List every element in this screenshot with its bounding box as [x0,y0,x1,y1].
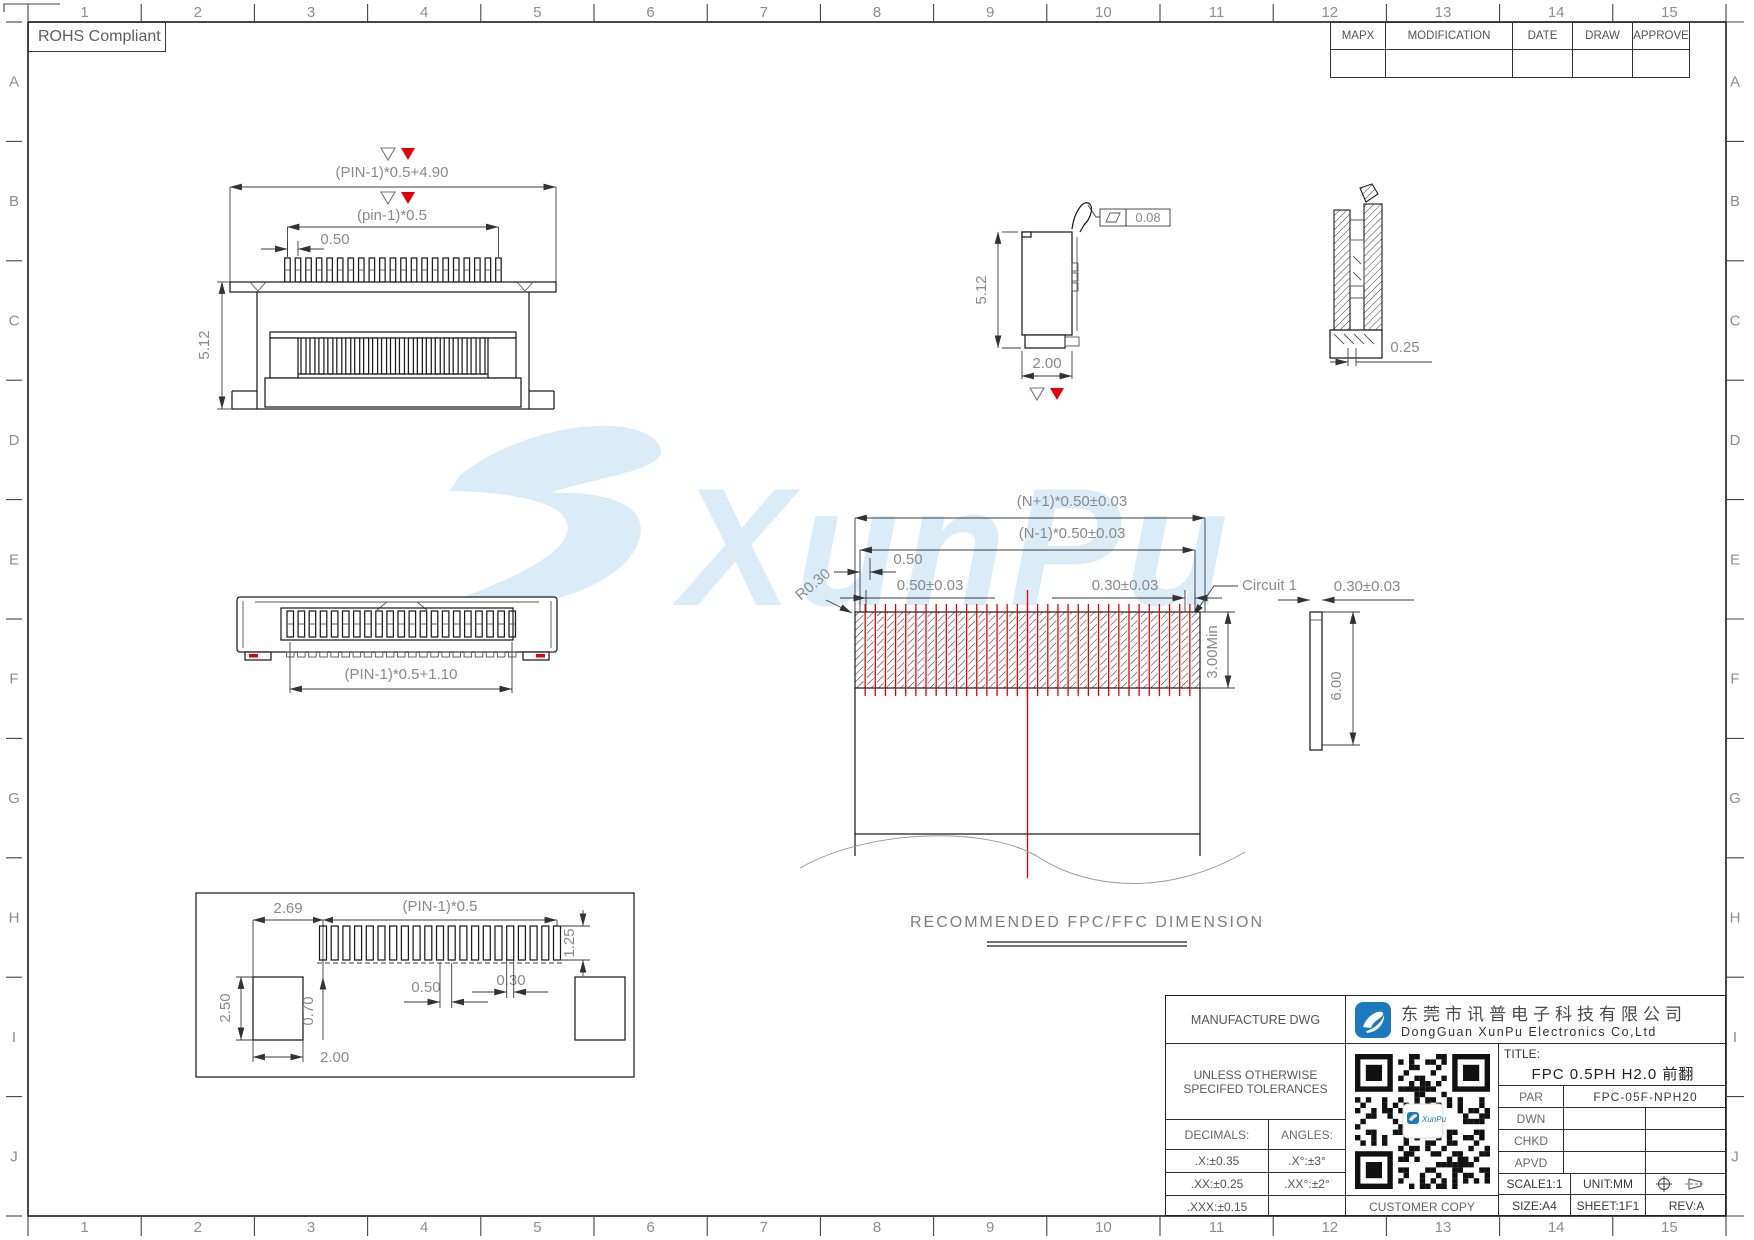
dimension-label: 1.25 [561,928,578,957]
manufacture-cell: MANUFACTURE DWG [1166,996,1346,1044]
unit-cell: UNIT:MM [1571,1174,1646,1195]
dimension-label: 0.50 [893,551,922,568]
zone-column-label: 15 [1661,1219,1678,1236]
row-label-dwn: DWN [1499,1108,1564,1130]
chkd-date [1646,1130,1727,1152]
rev-col-modification: MODIFICATION [1385,22,1512,50]
zone-column-label: 6 [646,1219,654,1236]
tolerance-line1: UNLESS OTHERWISE [1194,1068,1318,1082]
dimension-label: 0.70 [300,996,317,1025]
break-line [800,836,1245,884]
rev-col-date: DATE [1512,22,1572,50]
zone-row-label: F [9,671,18,688]
zone-row-label: B [1730,193,1740,210]
rev-empty-cell [1632,50,1690,78]
rev-empty-cell [1385,50,1512,78]
rohs-label: ROHS Compliant [38,28,161,46]
dimension-label: 0.30 [496,972,525,989]
zone-row-label: J [1731,1148,1739,1165]
dimension-label: 3.00Min [1204,625,1221,678]
drawing-title: FPC 0.5PH H2.0 前翻 [1499,1063,1727,1084]
tolerance-angle [1269,1195,1346,1217]
datum-triangle-icon [1030,388,1044,400]
tolerance-decimal: .XXX:±0.15 [1166,1195,1269,1217]
dimension-label: 2.00 [1032,355,1061,372]
zone-column-label: 15 [1661,4,1678,21]
rev-empty-cell [1572,50,1632,78]
tolerance-angle: .XX°:±2° [1269,1172,1346,1195]
zone-column-label: 9 [986,4,994,21]
actuator-latch [1072,203,1091,232]
apvd-date [1646,1152,1727,1174]
zone-column-label: 10 [1095,1219,1112,1236]
title-label: TITLE: [1504,1047,1540,1061]
dimension-label: 0.50 [320,231,349,248]
zone-column-label: 12 [1321,4,1338,21]
qr-center-logo-text: XunPu [1421,1115,1447,1124]
rev-empty-cell [1330,50,1385,78]
rev-empty-cell [1512,50,1572,78]
tolerance-decimal: .X:±0.35 [1166,1149,1269,1172]
qr-code: XunPu [1355,1054,1490,1189]
circuit-label: Circuit 1 [1242,577,1297,594]
housing-wall [1364,204,1382,330]
angles-header: ANGLES: [1269,1119,1346,1149]
dimension-label: (N+1)*0.50±0.03 [1017,493,1127,510]
red-triangle-icon [401,192,415,204]
radius-label: R0.30 [792,565,834,604]
zone-column-label: 2 [194,1219,202,1236]
zone-row-label: H [9,910,20,927]
red-triangle-icon [1050,388,1064,400]
fpc-side-profile [1310,612,1322,750]
company-cell: 东莞市讯普电子科技有限公司 DongGuan XunPu Electronics… [1346,996,1727,1044]
fpc-dimension-view: (N+1)*0.50±0.03 (N-1)*0.50±0.03 0.50 0.5… [790,460,1480,970]
row-label-apvd: APVD [1499,1152,1564,1174]
part-number: FPC-05F-NPH20 [1564,1086,1727,1108]
row-label-chkd: CHKD [1499,1130,1564,1152]
anchor-pad [575,977,625,1040]
projection-symbol [1646,1174,1727,1195]
dimension-label: 0.50±0.03 [897,577,964,594]
zone-row-label: I [12,1029,16,1046]
decimals-header: DECIMALS: [1166,1119,1269,1149]
zone-column-label: 3 [307,4,315,21]
dimension-label: (PIN-1)*0.5 [402,898,477,915]
title-cell: TITLE: FPC 0.5PH H2.0 前翻 [1499,1044,1727,1086]
dimension-label: 0.30±0.03 [1334,578,1401,595]
latch-section [1360,184,1378,202]
red-mark [536,654,545,658]
zone-column-label: 3 [307,1219,315,1236]
zone-column-label: 8 [873,1219,881,1236]
connector-base [265,378,521,407]
zone-row-label: A [1730,74,1740,91]
zone-row-label: F [1730,671,1739,688]
rev-cell: REV:A [1646,1195,1727,1217]
housing-wall [1334,210,1350,330]
zone-row-label: H [1730,910,1741,927]
zone-row-label: D [1730,432,1741,449]
zone-column-label: 5 [533,1219,541,1236]
zone-column-label: 11 [1209,1219,1225,1236]
dimension-label: 5.12 [196,330,213,359]
zone-column-label: 4 [420,1219,428,1236]
red-mark [249,654,258,658]
third-angle-projection-icon [1655,1176,1719,1192]
zone-column-label: 7 [760,1219,768,1236]
side-body [1022,232,1072,335]
connector-top-band [230,282,556,292]
zone-column-label: 11 [1209,4,1225,21]
zone-row-label: G [8,790,20,807]
apvd-value [1564,1152,1646,1174]
anchor-pad [253,977,303,1040]
drawing-sheet: XunPu 1122334455667788991010111112121313… [0,0,1754,1240]
tolerance-angle: .X°:±3° [1269,1149,1346,1172]
zone-column-label: 14 [1548,1219,1565,1236]
pin-row [285,258,502,282]
land-pattern-view: (PIN-1)*0.5 2.69 1.25 2.50 0.70 2.00 0.5… [170,880,665,1095]
sheet-cell: SHEET:1F1 [1571,1195,1646,1217]
tolerance-line2: SPECIFED TOLERANCES [1183,1082,1327,1096]
zone-row-label: E [1730,551,1740,568]
tolerance-note: UNLESS OTHERWISE SPECIFED TOLERANCES [1166,1044,1346,1119]
qr-cell: XunPu [1346,1044,1499,1195]
title-block: MANUFACTURE DWG 东莞市讯普电子科技有限公司 DongGuan X… [1165,995,1726,1216]
red-triangle-icon [401,148,415,160]
company-name-en: DongGuan XunPu Electronics Co,Ltd [1401,1025,1687,1039]
zone-row-label: I [1733,1029,1737,1046]
tolerance-decimal: .XX:±0.25 [1166,1172,1269,1195]
zone-row-label: E [9,551,19,568]
dwn-value [1564,1108,1646,1130]
scale-cell: SCALE1:1 [1499,1174,1571,1195]
zone-column-label: 13 [1435,1219,1452,1236]
zone-column-label: 8 [873,4,881,21]
dimension-label: (PIN-1)*0.5+1.10 [345,666,458,683]
zone-column-label: 13 [1435,4,1452,21]
zone-row-label: C [9,313,20,330]
company-name-cn: 东莞市讯普电子科技有限公司 [1401,1000,1687,1025]
zone-row-label: J [10,1148,18,1165]
zone-column-label: 12 [1321,1219,1338,1236]
datum-triangle-icon [381,192,395,204]
zone-column-label: 7 [760,4,768,21]
flatness-symbol-icon [1106,213,1120,222]
zone-column-label: 6 [646,4,654,21]
dimension-label: (PIN-1)*0.5+4.90 [336,164,449,181]
zone-column-label: 4 [420,4,428,21]
section-view: 0.25 [1320,180,1490,395]
side-view: 0.08 5.12 2.00 [950,185,1190,410]
size-cell: SIZE:A4 [1499,1195,1571,1217]
bottom-view: (PIN-1)*0.5+1.10 [225,560,575,705]
dimension-label: 0.30±0.03 [1092,577,1159,594]
zone-row-label: G [1729,790,1741,807]
datum-triangle-icon [381,148,395,160]
zone-column-label: 1 [80,4,88,21]
rev-col-approve: APPROVE [1632,22,1690,50]
zone-column-label: 9 [986,1219,994,1236]
dimension-label: 5.12 [973,275,990,304]
dwn-date [1646,1108,1727,1130]
zone-row-label: D [9,432,20,449]
rev-col-draw: DRAW [1572,22,1632,50]
dimension-label: (pin-1)*0.5 [357,207,427,224]
rohs-badge: ROHS Compliant [28,22,166,52]
dimension-label: 0.25 [1390,339,1419,356]
zone-column-label: 2 [194,4,202,21]
front-view: (PIN-1)*0.5+4.90 (pin-1)*0.5 0.50 [195,128,575,428]
contact-comb [301,338,485,374]
dimension-label: 2.50 [217,993,234,1022]
dimension-label: 0.50 [411,979,440,996]
customer-copy-label: CUSTOMER COPY [1346,1195,1499,1217]
zone-column-label: 1 [80,1219,88,1236]
dimension-label: (N-1)*0.50±0.03 [1019,525,1126,542]
dimension-label: 2.69 [273,900,302,917]
flatness-value: 0.08 [1135,210,1160,225]
solder-tail [1025,335,1065,348]
zone-row-label: B [9,193,19,210]
zone-column-label: 5 [533,4,541,21]
zone-column-label: 10 [1095,4,1112,21]
company-logo [1354,1001,1392,1039]
zone-row-label: A [9,74,19,91]
rev-col-mapx: MAPX [1330,22,1385,50]
fpc-caption: RECOMMENDED FPC/FFC DIMENSION [910,914,1264,931]
dimension-label: 2.00 [320,1049,349,1066]
row-label-par: PAR [1499,1086,1564,1108]
chkd-value [1564,1130,1646,1152]
zone-row-label: C [1730,313,1741,330]
dimension-label: 6.00 [1328,671,1345,700]
zone-column-label: 14 [1548,4,1565,21]
revision-table: MAPX MODIFICATION DATE DRAW APPROVE [1330,22,1690,78]
solder-pads [320,926,561,960]
